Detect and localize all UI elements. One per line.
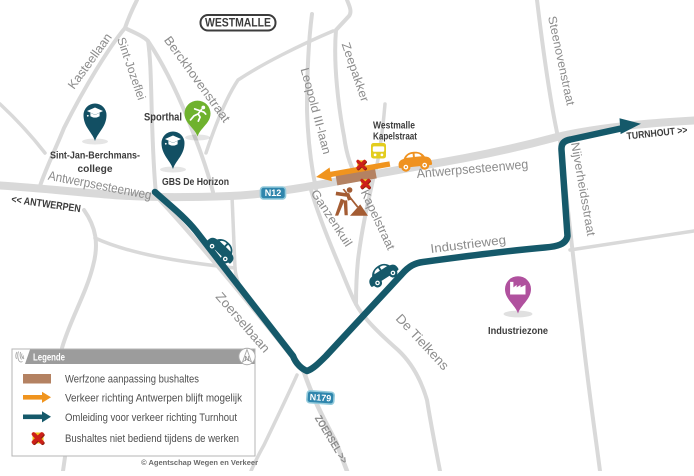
svg-text:N179: N179 — [309, 392, 331, 403]
svg-text:Sporthal: Sporthal — [144, 112, 182, 124]
svg-text:college: college — [78, 163, 113, 175]
svg-text:Industriezone: Industriezone — [488, 325, 548, 337]
svg-text:Omleiding voor verkeer richtin: Omleiding voor verkeer richting Turnhout — [65, 412, 237, 424]
svg-text:Verkeer richting Antwerpen bli: Verkeer richting Antwerpen blijft mogeli… — [65, 393, 242, 405]
svg-text:Werfzone aanpassing bushaltes: Werfzone aanpassing bushaltes — [65, 374, 199, 386]
svg-text:N12: N12 — [265, 188, 282, 198]
svg-text:Kapelstraat: Kapelstraat — [373, 131, 417, 143]
svg-text:WESTMALLE: WESTMALLE — [205, 16, 271, 30]
svg-text:N: N — [244, 356, 249, 363]
svg-text:Legende: Legende — [33, 352, 65, 364]
svg-text:Sint-Jan-Berchmans-: Sint-Jan-Berchmans- — [50, 150, 140, 162]
svg-text:© Agentschap Wegen en Verkeer: © Agentschap Wegen en Verkeer — [141, 458, 258, 467]
svg-text:Bushaltes niet bediend tijdens: Bushaltes niet bediend tijdens de werken — [65, 433, 239, 445]
svg-text:GBS De Horizon: GBS De Horizon — [162, 176, 229, 188]
